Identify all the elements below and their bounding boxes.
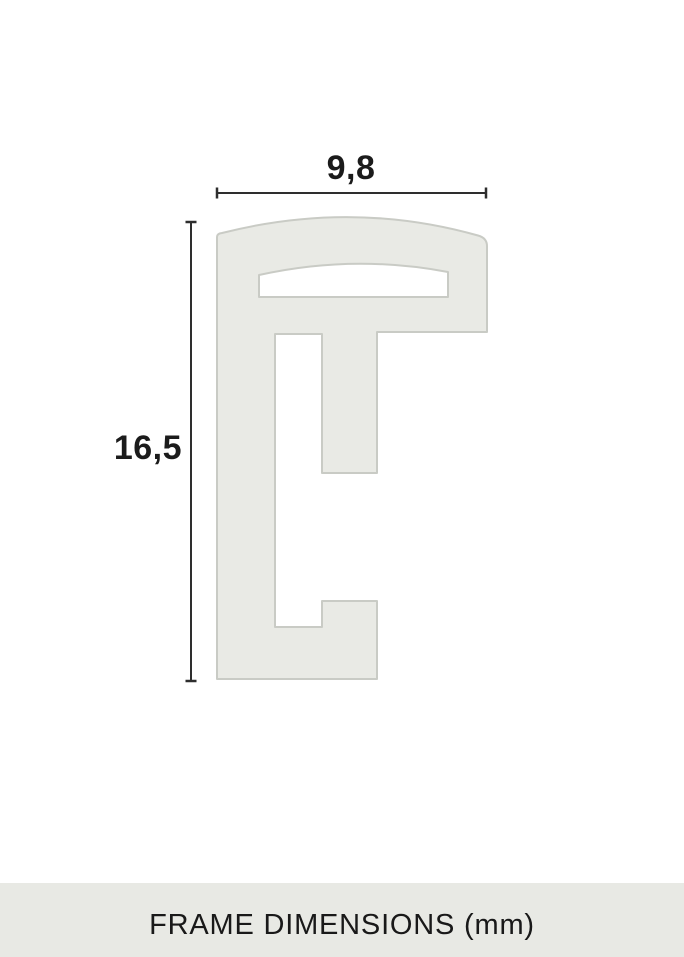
frame-cross-section-drawing [0, 0, 684, 957]
frame-dimensions-diagram: 9,8 16,5 FRAME DIMENSIONS (mm) [0, 0, 684, 957]
width-dimension-line [217, 188, 486, 199]
frame-profile-shape [217, 217, 487, 679]
height-dimension-label: 16,5 [78, 431, 182, 465]
caption-bar: FRAME DIMENSIONS (mm) [0, 883, 684, 957]
width-dimension-label: 9,8 [271, 151, 431, 185]
height-dimension-line [186, 222, 197, 681]
caption-text: FRAME DIMENSIONS (mm) [149, 899, 535, 942]
